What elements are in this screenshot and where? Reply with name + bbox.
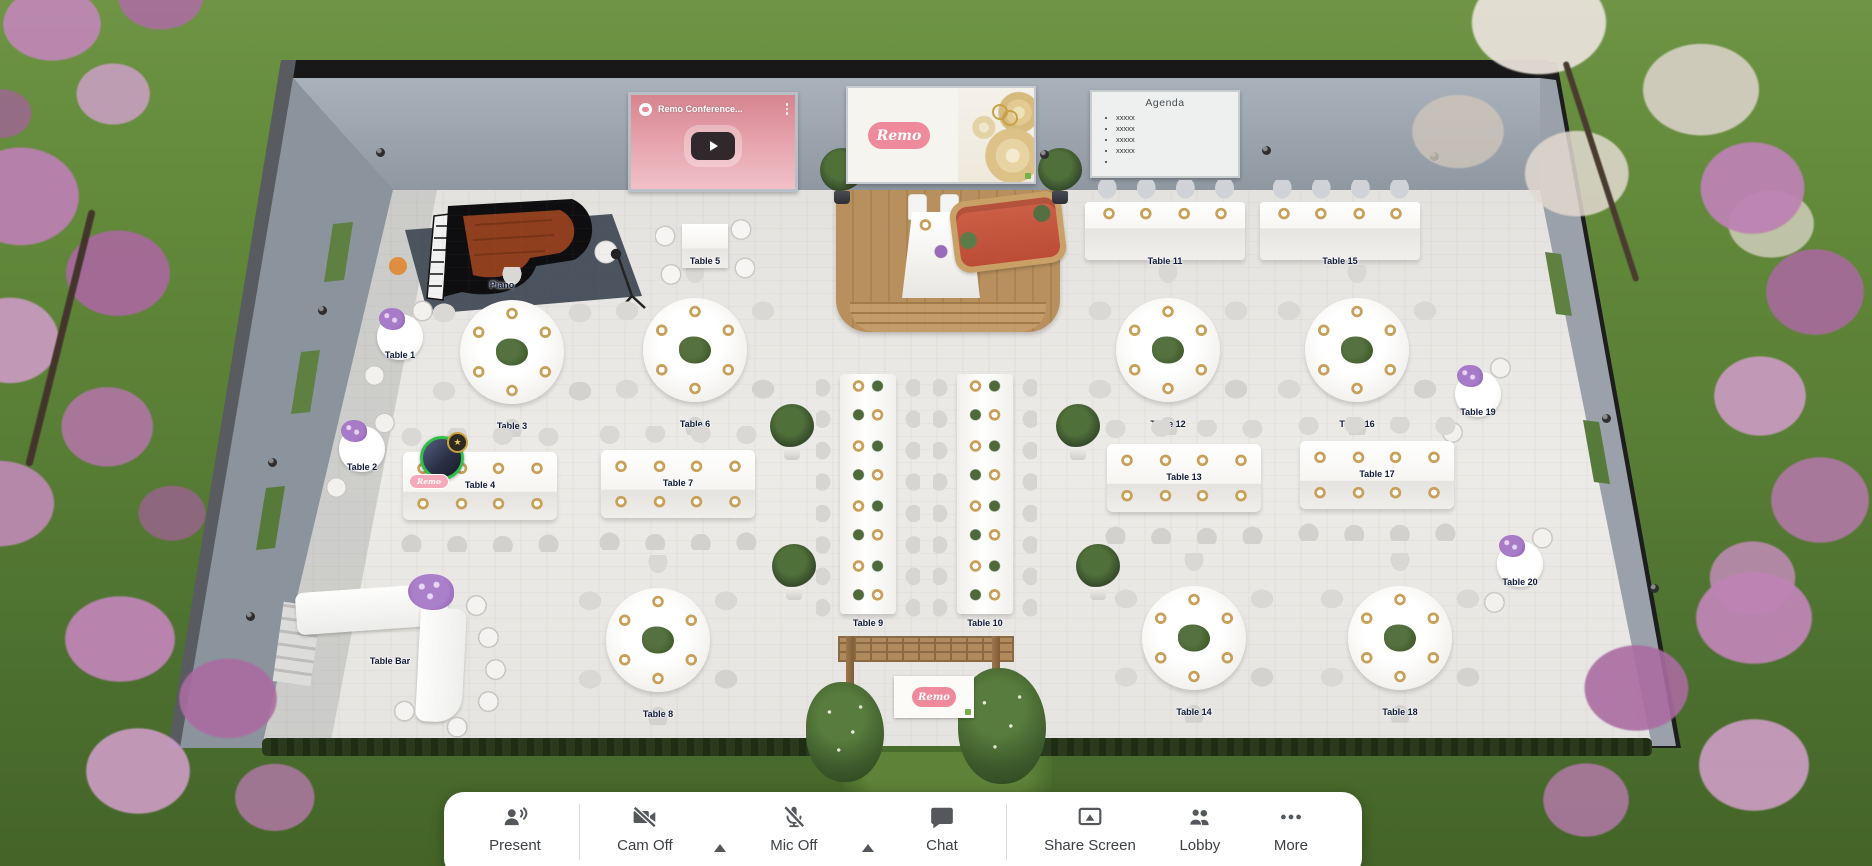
table-top (1116, 298, 1220, 402)
share-screen-button[interactable]: Share Screen (1044, 804, 1136, 854)
button-label: Chat (926, 837, 958, 854)
cam-options-caret-icon[interactable] (710, 835, 730, 861)
couch (948, 189, 1068, 274)
remo-sign: Remo (894, 676, 974, 718)
button-label: Lobby (1179, 837, 1220, 854)
table-10[interactable]: Table 10 (933, 372, 1037, 634)
wedding-ring-icon (1002, 110, 1018, 126)
banner-screen[interactable]: Remo (846, 86, 1036, 184)
table-label: Table 19 (1438, 407, 1518, 417)
wall-speaker (246, 612, 255, 621)
more-button[interactable]: More (1264, 804, 1318, 854)
table-label: Table 18 (1315, 707, 1485, 717)
button-label: More (1274, 837, 1308, 854)
roses-image (958, 88, 1034, 182)
table-top (1142, 586, 1246, 690)
table-top (1305, 298, 1409, 402)
hedge (1026, 738, 1652, 756)
wall-speaker (376, 148, 385, 157)
button-label: Present (489, 837, 541, 854)
table-7[interactable]: Table 7 (583, 426, 773, 550)
table-5[interactable]: Table 5 (655, 212, 755, 292)
cam-off-button[interactable]: Cam Off (617, 804, 673, 854)
mic-off-icon (781, 804, 807, 830)
mic-off-button[interactable]: Mic Off (767, 804, 821, 854)
mic-options-caret-icon[interactable] (858, 835, 878, 861)
chat-icon (929, 804, 955, 830)
table-top (957, 374, 1013, 614)
video-player-screen[interactable]: Remo Conference... (628, 92, 798, 192)
piano-stool (389, 257, 407, 275)
more-icon (1278, 804, 1304, 830)
camera-off-icon (632, 804, 658, 830)
watermark-icon (965, 709, 971, 715)
lobby-icon (1187, 804, 1213, 830)
agenda-item (1116, 157, 1228, 168)
table-label: Table 15 (1255, 256, 1425, 266)
kebab-menu-icon[interactable] (785, 103, 789, 115)
arch-trellis (838, 636, 1014, 662)
toolbar-divider (1006, 804, 1007, 860)
remo-logo-icon (639, 103, 652, 116)
wall-speaker (1430, 152, 1439, 161)
lobby-button[interactable]: Lobby (1173, 804, 1227, 854)
table-14[interactable]: Table 14 (1109, 553, 1279, 739)
present-icon (502, 804, 528, 830)
user-avatar[interactable]: ★ Remo (420, 436, 464, 480)
flower-bush (806, 682, 884, 782)
agenda-item: xxxxx (1116, 124, 1228, 135)
toolbar-divider (579, 804, 580, 860)
table-15[interactable]: Table 15 (1255, 180, 1425, 280)
piano-label[interactable]: Piano (462, 280, 542, 290)
table-13[interactable]: Table 13 (1089, 420, 1279, 544)
table-label: Table 14 (1109, 707, 1279, 717)
watermark-icon (1025, 173, 1031, 179)
chat-button[interactable]: Chat (915, 804, 969, 854)
agenda-list: xxxxx xxxxx xxxxx xxxxx (1106, 113, 1228, 167)
wall-speaker (1650, 584, 1659, 593)
table-6[interactable]: Table 6 (610, 265, 780, 451)
table-top (606, 588, 710, 692)
table-3[interactable]: Table 3 (427, 267, 597, 453)
star-badge-icon: ★ (447, 432, 468, 453)
present-button[interactable]: Present (488, 804, 542, 854)
table-top (1260, 202, 1420, 260)
remo-logo: Remo (868, 122, 930, 149)
table-label: Table Bar (270, 656, 510, 666)
button-label: Share Screen (1044, 837, 1136, 854)
wall-speaker (268, 458, 277, 467)
table-20[interactable]: Table 20 (1480, 527, 1560, 619)
button-label: Cam Off (617, 837, 673, 854)
table-label: Table 9 (816, 618, 920, 628)
wall-speaker (1262, 146, 1271, 155)
table-label: Table 7 (583, 478, 773, 488)
hedge (262, 738, 828, 756)
table-8[interactable]: Table 8 (573, 555, 743, 741)
table-label: Table 11 (1080, 256, 1250, 266)
table-17[interactable]: Table 17 (1282, 417, 1472, 541)
play-icon[interactable] (691, 132, 735, 160)
agenda-item: xxxxx (1116, 135, 1228, 146)
button-label: Mic Off (770, 837, 817, 854)
table-label: Table 20 (1480, 577, 1560, 587)
table-11[interactable]: Table 11 (1080, 180, 1250, 280)
avatar-name-tag: Remo (409, 474, 449, 489)
agenda-whiteboard[interactable]: Agenda xxxxx xxxxx xxxxx xxxxx (1090, 90, 1240, 178)
table-label: Table 13 (1089, 472, 1279, 482)
table-label: Table 5 (655, 256, 755, 266)
agenda-item: xxxxx (1116, 113, 1228, 124)
table-4[interactable]: Table 4 (385, 428, 575, 552)
remo-logo: Remo (912, 687, 956, 707)
table-18[interactable]: Table 18 (1315, 553, 1485, 739)
table-label: Table 17 (1282, 469, 1472, 479)
wall-speaker (1602, 414, 1611, 423)
table-top (1085, 202, 1245, 260)
table-top (1348, 586, 1452, 690)
table-bar[interactable]: Table Bar (270, 580, 510, 740)
table-top (460, 300, 564, 404)
video-title: Remo Conference... (658, 104, 779, 114)
agenda-title: Agenda (1102, 97, 1228, 109)
table-9[interactable]: Table 9 (816, 372, 920, 634)
table-top (840, 374, 896, 614)
bottom-toolbar: Present Cam Off (444, 792, 1362, 866)
table-label: Table 8 (573, 709, 743, 719)
wall-speaker (1040, 150, 1049, 159)
remo-event-screen: Remo Conference... Remo Agenda xxxxx xxx… (0, 0, 1872, 866)
agenda-item: xxxxx (1116, 146, 1228, 157)
wall-speaker (318, 306, 327, 315)
share-screen-icon (1077, 804, 1103, 830)
potted-rose-tree (772, 544, 816, 588)
table-label: Table 10 (933, 618, 1037, 628)
table-top (643, 298, 747, 402)
